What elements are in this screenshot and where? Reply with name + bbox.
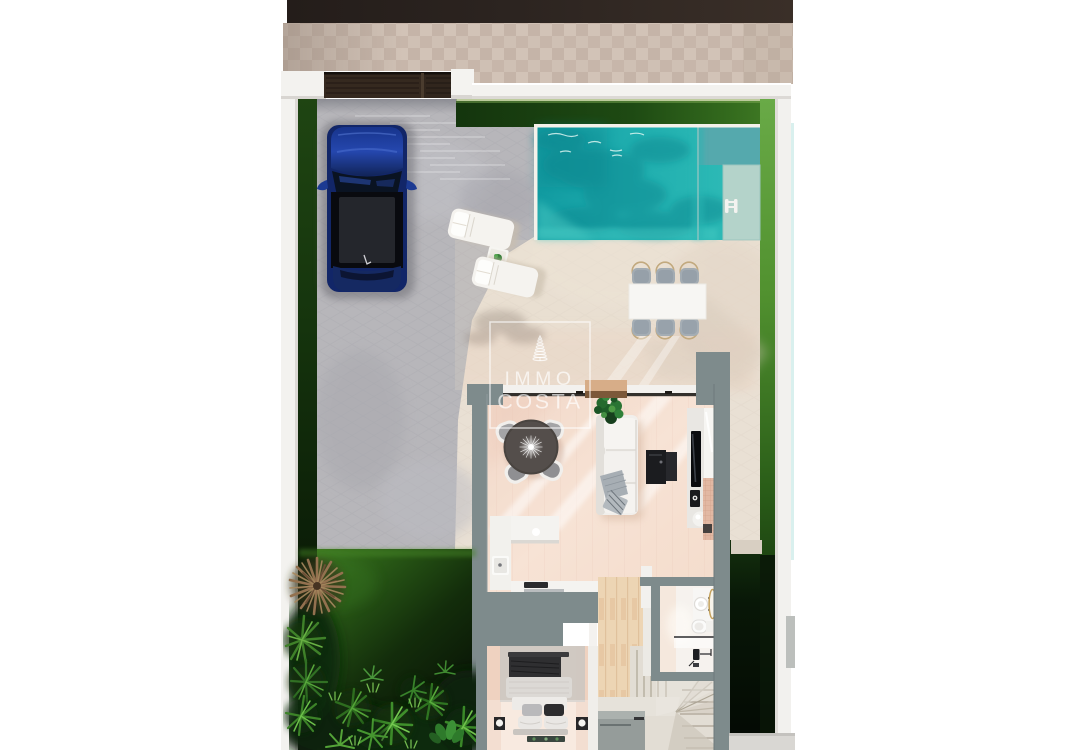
svg-text:COSTA: COSTA: [497, 390, 582, 414]
svg-text:IMMO: IMMO: [504, 368, 575, 390]
